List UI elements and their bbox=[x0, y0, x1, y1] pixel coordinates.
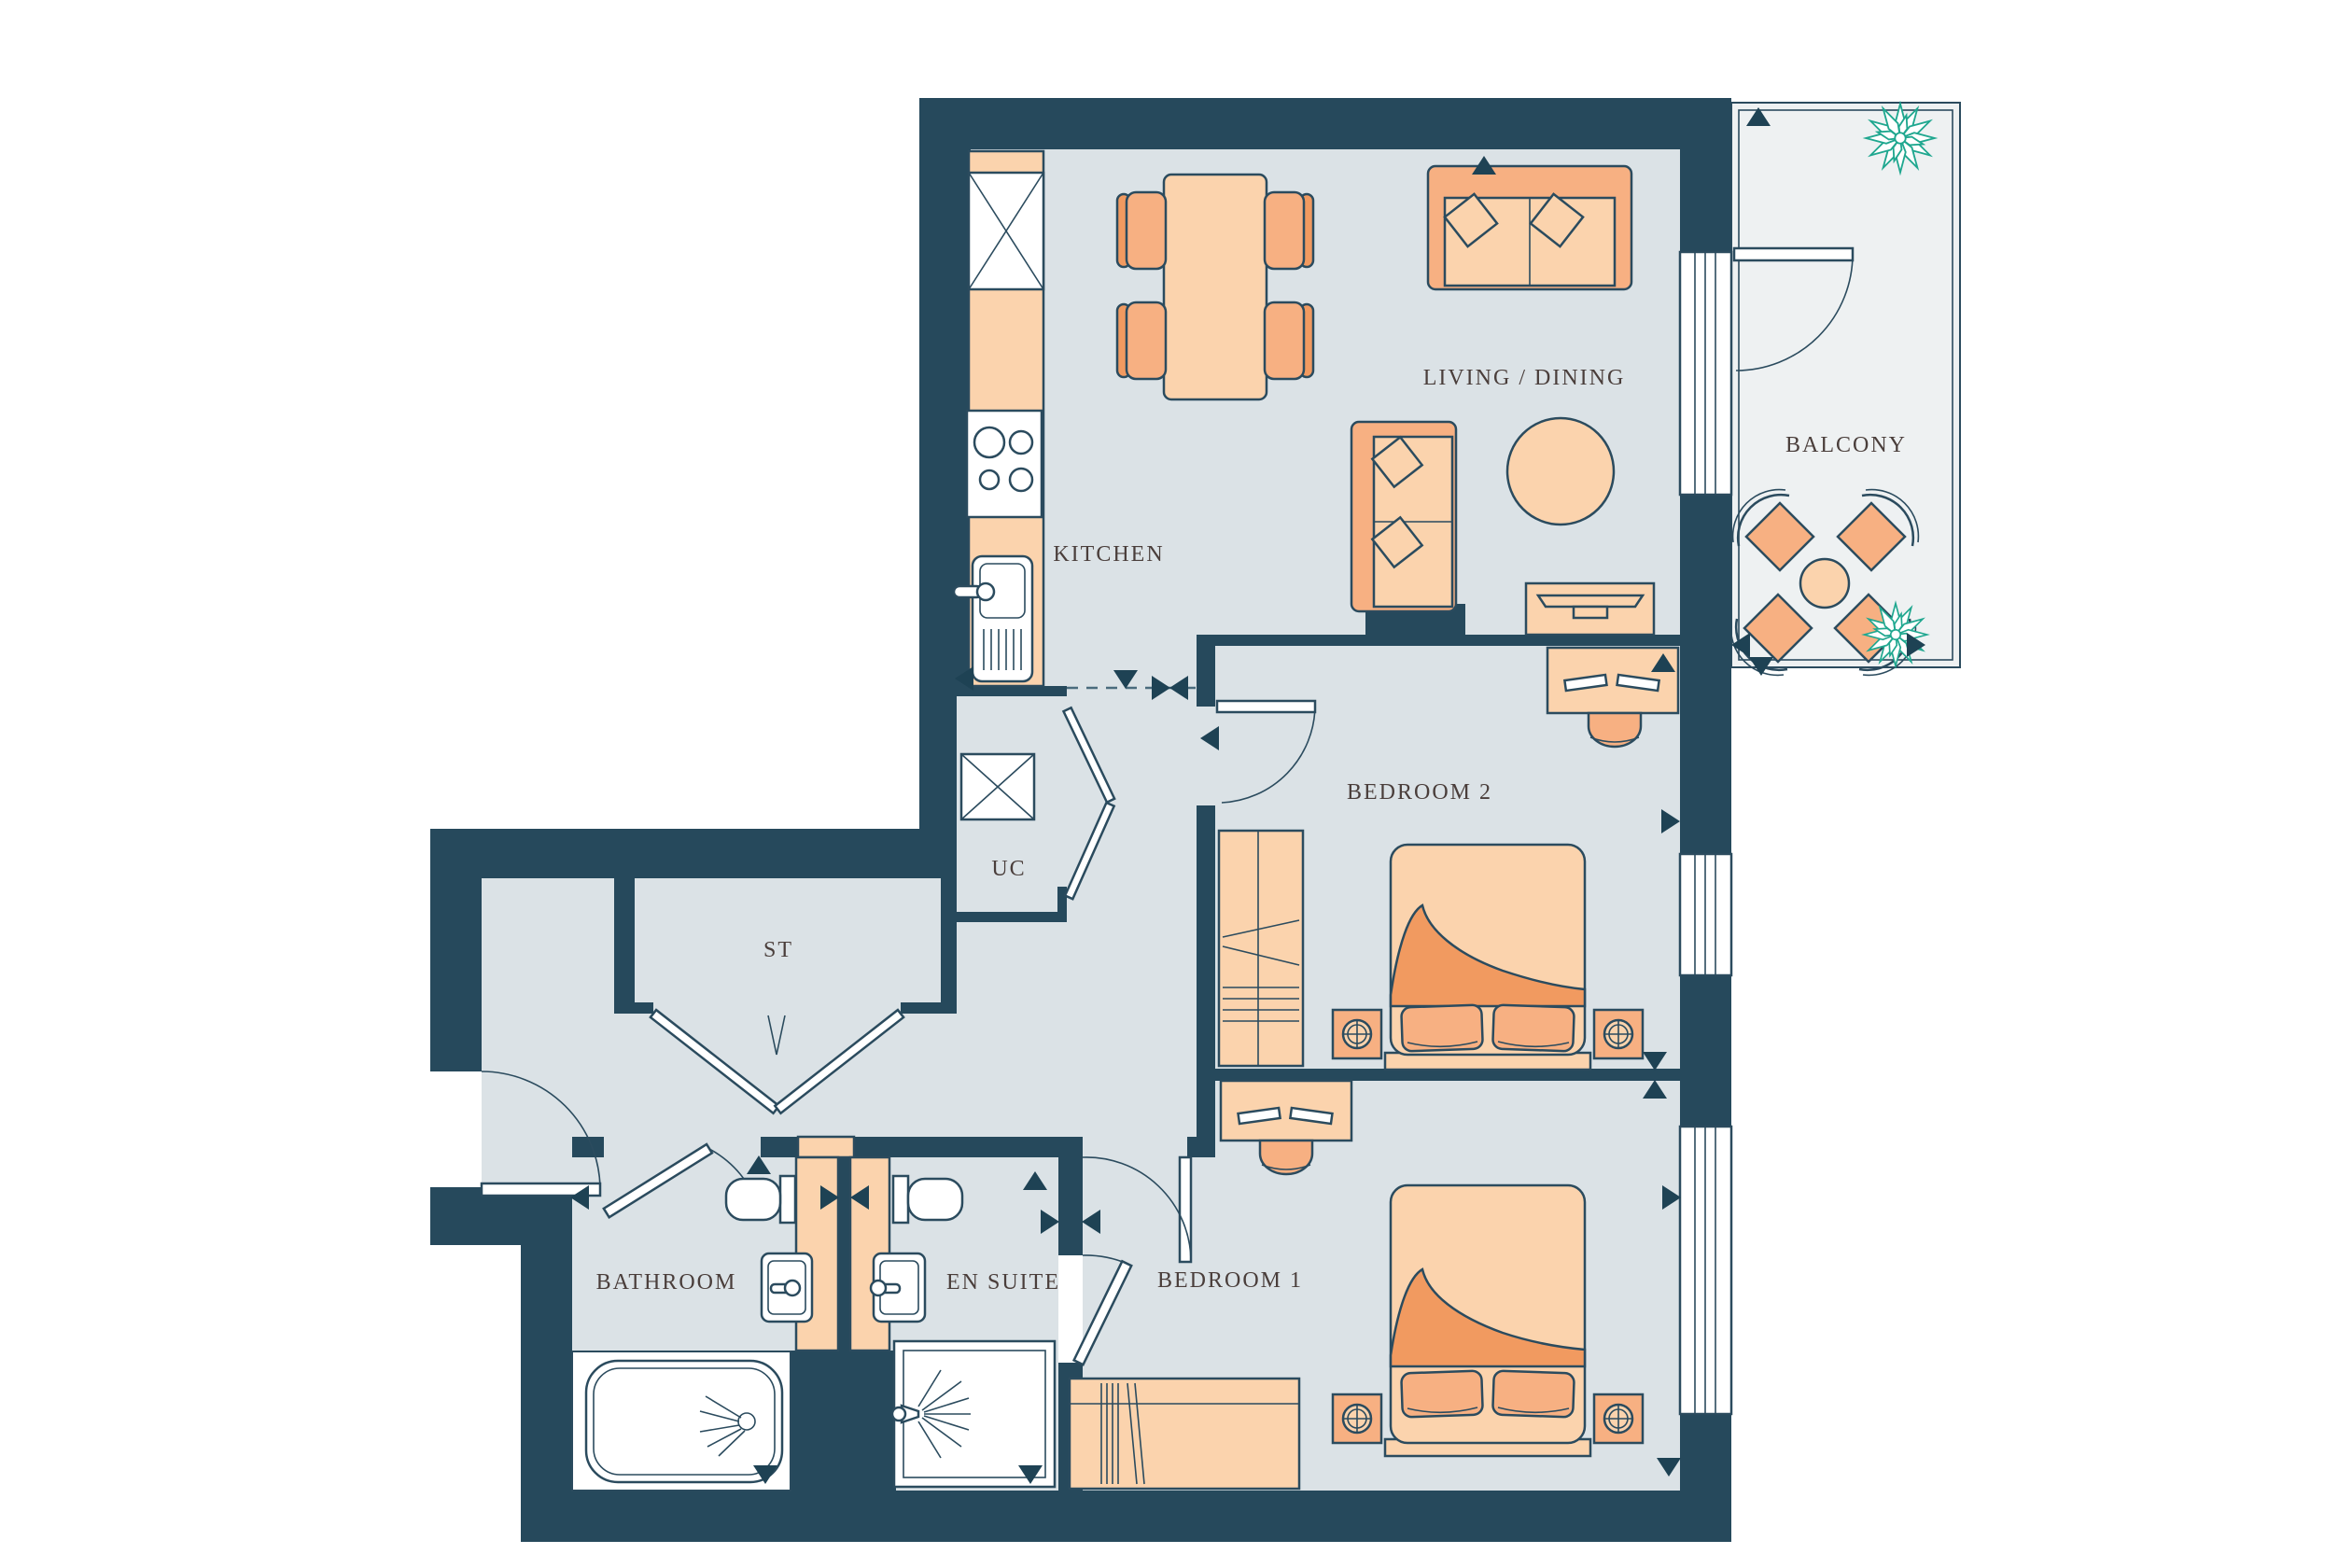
floor-plan: LIVING / DINING KITCHEN BALCONY BEDROOM … bbox=[0, 0, 2352, 1568]
hob bbox=[967, 411, 1042, 517]
bedside-table bbox=[1594, 1394, 1643, 1443]
round-table bbox=[1507, 418, 1614, 525]
label-bedroom-2: BEDROOM 2 bbox=[1347, 780, 1492, 805]
kitchen-sink bbox=[973, 556, 1032, 681]
label-balcony: BALCONY bbox=[1785, 433, 1907, 457]
floor-hall-south bbox=[574, 922, 1197, 1157]
balcony-area bbox=[1731, 103, 1960, 675]
bedside-table bbox=[1333, 1394, 1381, 1443]
toilet bbox=[780, 1176, 795, 1223]
wardrobe bbox=[1070, 1379, 1299, 1489]
floor-plan-page: LIVING / DINING KITCHEN BALCONY BEDROOM … bbox=[0, 0, 2352, 1568]
label-living-dining: LIVING / DINING bbox=[1423, 366, 1626, 390]
toilet bbox=[893, 1176, 908, 1223]
label-bedroom-1: BEDROOM 1 bbox=[1157, 1268, 1303, 1293]
double-bed bbox=[1385, 1185, 1590, 1456]
double-bed bbox=[1385, 845, 1590, 1070]
bedside-table bbox=[1333, 1010, 1381, 1058]
sofa-large bbox=[1428, 166, 1631, 289]
sofa-small bbox=[1351, 422, 1456, 611]
label-utility: UC bbox=[991, 857, 1026, 881]
label-bathroom: BATHROOM bbox=[596, 1270, 737, 1295]
bedroom-2-door-leaf bbox=[1217, 701, 1315, 712]
basin bbox=[762, 1253, 812, 1322]
tv-unit bbox=[1526, 583, 1654, 635]
basin bbox=[871, 1253, 925, 1322]
utility-fixtures bbox=[961, 754, 1034, 819]
service-wall-chase bbox=[798, 1137, 854, 1157]
label-en-suite: EN SUITE bbox=[946, 1270, 1060, 1295]
label-kitchen: KITCHEN bbox=[1053, 542, 1164, 567]
balcony-table bbox=[1800, 559, 1849, 608]
balcony-door-leaf bbox=[1734, 248, 1853, 260]
shower bbox=[892, 1341, 1055, 1487]
label-storage: ST bbox=[763, 938, 793, 962]
dining-table bbox=[1164, 175, 1267, 399]
wardrobe bbox=[1219, 831, 1303, 1066]
bedside-table bbox=[1594, 1010, 1643, 1058]
